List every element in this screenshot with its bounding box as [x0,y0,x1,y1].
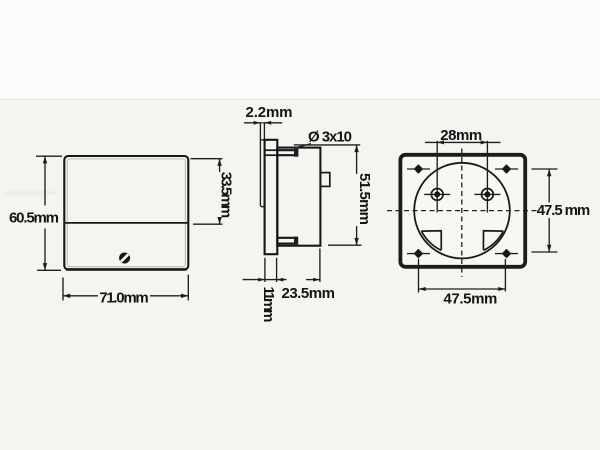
svg-text:11mm: 11mm [260,287,277,323]
svg-text:33.5mm: 33.5mm [217,172,234,219]
svg-text:28mm: 28mm [440,127,482,144]
svg-text:47.5 mm: 47.5 mm [537,202,591,219]
svg-text:60.5mm: 60.5mm [9,210,59,227]
svg-text:Ø 3x10: Ø 3x10 [308,128,352,145]
svg-text:23.5mm: 23.5mm [281,285,335,302]
svg-text:51.5mm: 51.5mm [356,173,373,225]
svg-text:2.2mm: 2.2mm [246,104,293,121]
svg-text:71.0mm: 71.0mm [99,289,149,306]
svg-text:47.5mm: 47.5mm [443,290,497,307]
